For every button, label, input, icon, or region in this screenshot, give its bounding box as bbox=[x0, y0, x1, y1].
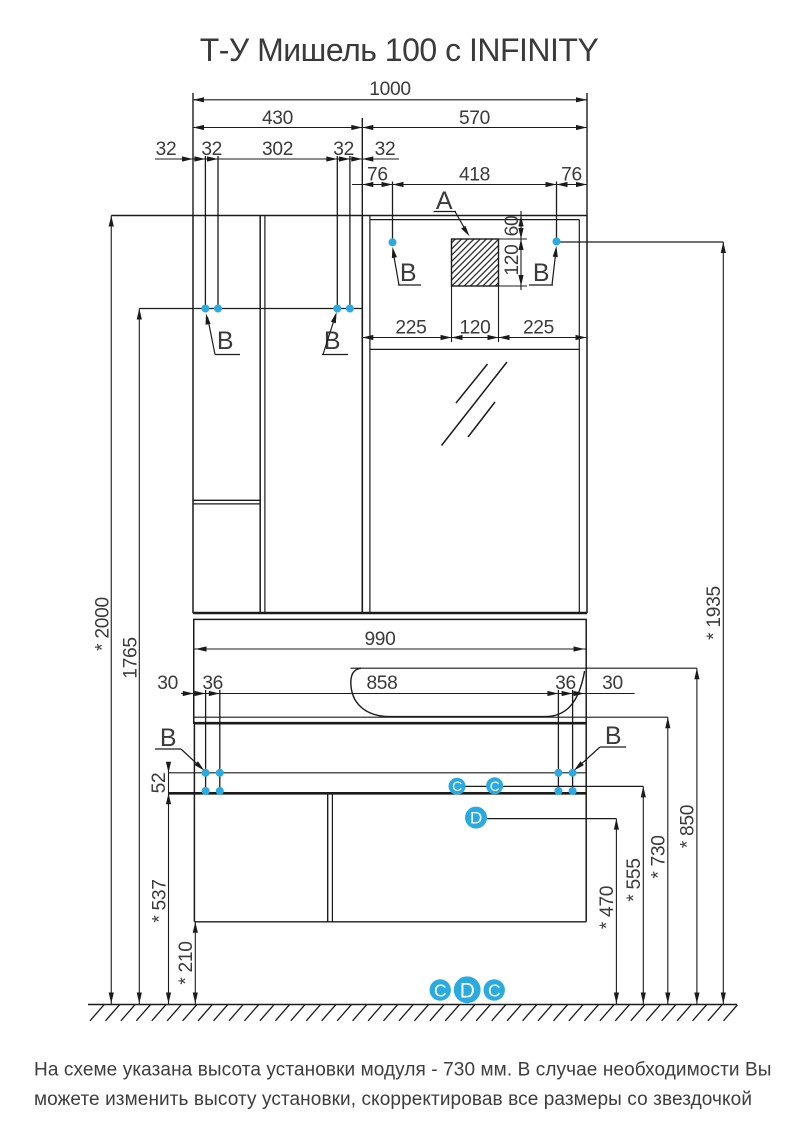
svg-text:* 210: * 210 bbox=[176, 941, 197, 984]
svg-text:30: 30 bbox=[157, 673, 178, 694]
svg-text:B: B bbox=[160, 724, 176, 752]
svg-text:302: 302 bbox=[262, 139, 293, 160]
svg-text:120: 120 bbox=[502, 244, 523, 275]
svg-text:D: D bbox=[460, 979, 475, 1002]
svg-text:30: 30 bbox=[602, 673, 623, 694]
svg-text:120: 120 bbox=[459, 318, 490, 339]
svg-text:* 470: * 470 bbox=[597, 886, 618, 929]
svg-text:B: B bbox=[400, 259, 416, 287]
svg-text:1000: 1000 bbox=[369, 79, 411, 100]
svg-text:C: C bbox=[452, 778, 462, 794]
svg-text:* 730: * 730 bbox=[649, 835, 670, 878]
svg-text:Т-У Мишель 100 с INFINITY: Т-У Мишель 100 с INFINITY bbox=[200, 32, 599, 68]
svg-text:C: C bbox=[434, 980, 446, 1000]
svg-text:D: D bbox=[470, 809, 482, 828]
svg-text:A: A bbox=[436, 187, 453, 215]
svg-text:225: 225 bbox=[523, 318, 554, 339]
svg-text:B: B bbox=[605, 722, 621, 750]
svg-text:32: 32 bbox=[333, 139, 354, 160]
svg-text:На схеме указана высота устано: На схеме указана высота установки модуля… bbox=[34, 1060, 772, 1081]
svg-text:B: B bbox=[217, 327, 233, 355]
svg-text:B: B bbox=[324, 327, 340, 355]
svg-text:32: 32 bbox=[156, 139, 177, 160]
svg-text:32: 32 bbox=[375, 139, 396, 160]
svg-text:* 2000: * 2000 bbox=[92, 597, 113, 651]
svg-text:1765: 1765 bbox=[121, 637, 142, 679]
svg-text:225: 225 bbox=[395, 318, 426, 339]
svg-text:* 537: * 537 bbox=[149, 879, 170, 922]
svg-text:* 1935: * 1935 bbox=[704, 586, 725, 640]
svg-text:32: 32 bbox=[201, 139, 222, 160]
svg-text:52: 52 bbox=[149, 773, 170, 794]
svg-text:430: 430 bbox=[262, 108, 293, 129]
svg-text:* 555: * 555 bbox=[624, 858, 645, 901]
svg-text:418: 418 bbox=[459, 165, 490, 186]
svg-text:76: 76 bbox=[367, 165, 388, 186]
svg-text:можете изменить высоту установ: можете изменить высоту установки, скорре… bbox=[34, 1089, 752, 1110]
svg-text:76: 76 bbox=[561, 165, 582, 186]
svg-text:60: 60 bbox=[502, 216, 523, 237]
svg-text:C: C bbox=[490, 778, 500, 794]
svg-text:B: B bbox=[533, 259, 549, 287]
svg-text:858: 858 bbox=[366, 673, 397, 694]
svg-text:990: 990 bbox=[364, 629, 395, 650]
svg-text:* 850: * 850 bbox=[678, 805, 699, 848]
svg-text:C: C bbox=[488, 980, 500, 1000]
svg-text:570: 570 bbox=[459, 108, 490, 129]
